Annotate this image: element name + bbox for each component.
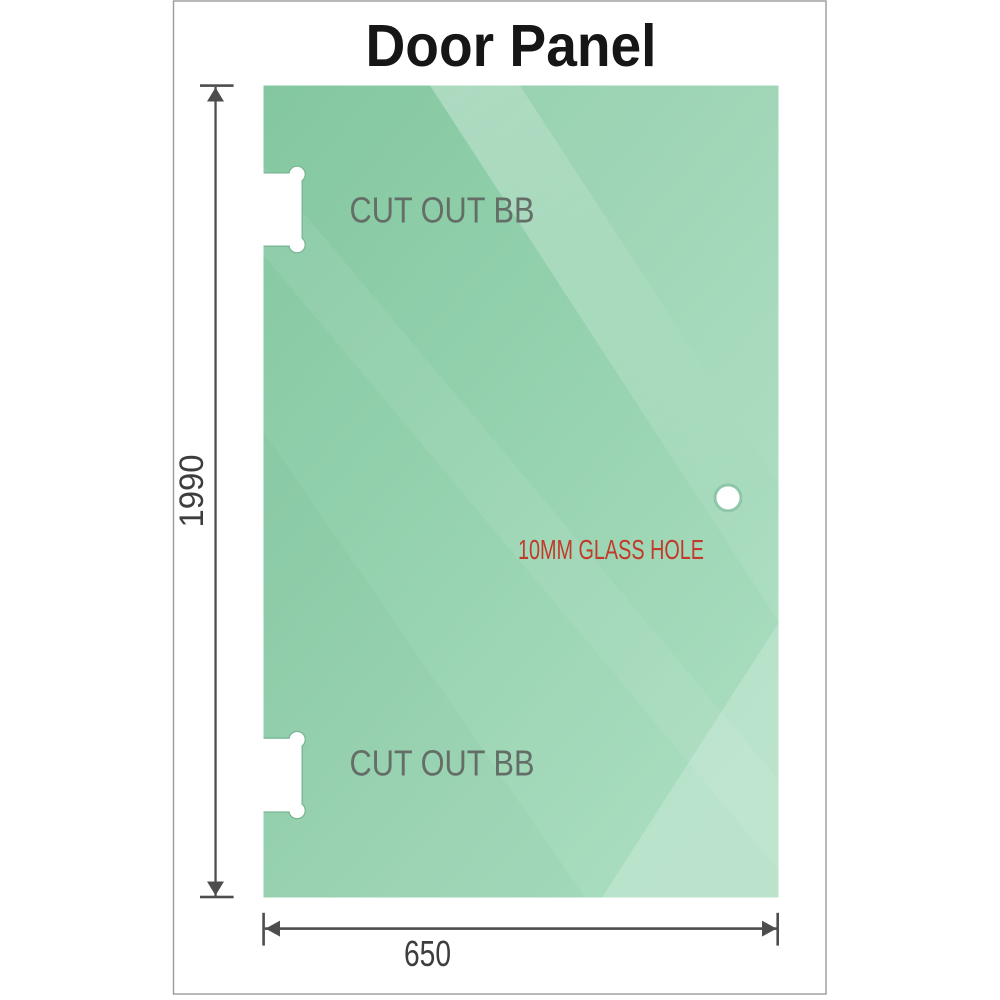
svg-text:CUT OUT BB: CUT OUT BB	[350, 190, 535, 231]
svg-text:CUT OUT BB: CUT OUT BB	[350, 743, 535, 784]
svg-text:10MM GLASS HOLE: 10MM GLASS HOLE	[518, 534, 704, 565]
svg-text:650: 650	[404, 933, 451, 974]
svg-text:Door Panel: Door Panel	[366, 13, 657, 79]
svg-text:1990: 1990	[173, 455, 211, 528]
